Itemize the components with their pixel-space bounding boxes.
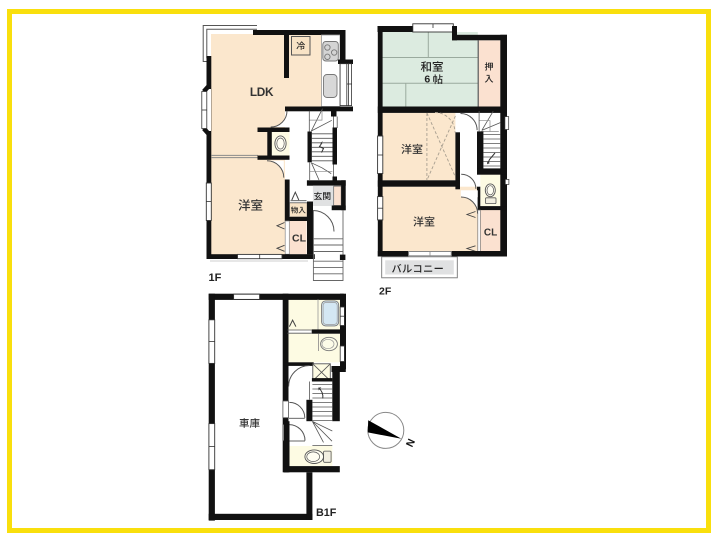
svg-text:2F: 2F xyxy=(379,285,392,297)
svg-text:B1F: B1F xyxy=(316,507,337,519)
svg-text:CL: CL xyxy=(484,227,497,238)
svg-text:6: 6 xyxy=(424,74,430,86)
svg-text:LDK: LDK xyxy=(250,85,274,99)
svg-text:1F: 1F xyxy=(209,272,222,284)
svg-text:CL: CL xyxy=(292,232,307,244)
